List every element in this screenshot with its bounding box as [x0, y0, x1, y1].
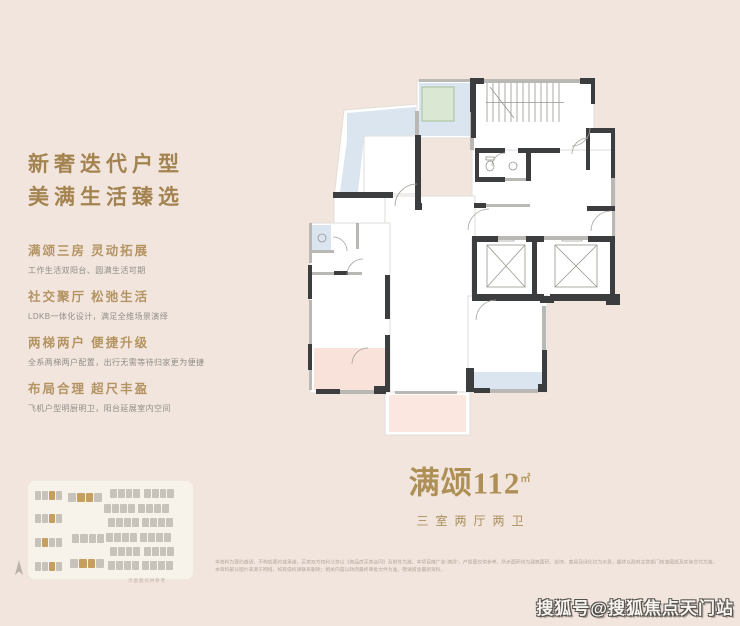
building-footprint: [106, 533, 137, 542]
left-panel: 新奢迭代户型 美满生活臻选 满颂三房 灵动拓展 工作生活双阳台、圆满生活可期 社…: [28, 148, 273, 424]
building-unit: [133, 489, 140, 498]
building-unit: [148, 533, 155, 542]
highlighted-building-unit: [88, 559, 96, 568]
building-unit: [144, 489, 151, 498]
highlighted-building-unit: [49, 491, 55, 500]
building-footprint: [35, 562, 62, 571]
floor-plan-svg: [300, 78, 645, 463]
building-unit: [42, 491, 48, 500]
disclaimer-line-1: 本资料为要约邀请，不构成要约或承诺，买卖双方权利义务以《商品房买卖合同》及附件为…: [215, 558, 722, 566]
building-unit: [72, 534, 79, 543]
building-unit: [116, 561, 123, 570]
site-plan-buildings: [28, 481, 193, 579]
selling-point-1: 满颂三房 灵动拓展 工作生活双阳台、圆满生活可期: [28, 240, 273, 276]
building-footprint: [110, 547, 140, 556]
building-unit: [120, 504, 127, 513]
building-unit: [80, 534, 87, 543]
building-unit: [124, 518, 131, 527]
building-footprint: [35, 514, 62, 523]
building-unit: [158, 561, 165, 570]
building-unit: [152, 547, 159, 556]
site-plan-caption: 示意图仅供参考: [128, 577, 166, 584]
compass-icon: [14, 560, 24, 576]
building-unit: [146, 504, 153, 513]
building-unit: [133, 547, 140, 556]
building-unit: [124, 561, 131, 570]
building-footprint: [108, 518, 139, 527]
building-unit: [144, 547, 151, 556]
selling-point-body: 工作生活双阳台、圆满生活可期: [28, 265, 273, 276]
building-unit: [130, 533, 137, 542]
building-footprint: [138, 504, 169, 513]
building-unit: [56, 538, 62, 547]
building-unit: [126, 547, 133, 556]
building-footprint: [70, 559, 104, 568]
building-unit: [112, 504, 119, 513]
bay-window-bottom-right: [471, 372, 544, 390]
building-unit: [142, 518, 149, 527]
page-root: { "colors": { "background": "#f2e5dd", "…: [0, 0, 740, 626]
title-line-1: 新奢迭代户型: [28, 148, 273, 181]
balcony-top-left: [340, 107, 416, 194]
highlighted-building-unit: [79, 559, 87, 568]
building-footprint: [144, 489, 174, 498]
building-unit: [35, 514, 41, 523]
selling-point-body: 飞机户型明厨明卫，阳台延展室内空间: [28, 403, 273, 414]
selling-point-heading: 社交聚厅 松弛生活: [28, 286, 273, 305]
balcony-bottom-pink: [389, 395, 466, 432]
building-unit: [49, 538, 55, 547]
building-unit: [56, 491, 62, 500]
building-unit: [68, 493, 76, 502]
building-footprint: [142, 561, 173, 570]
building-unit: [158, 518, 165, 527]
building-unit: [166, 518, 173, 527]
selling-point-body: 全系两梯两户配置，出行无需等待归家更为便捷: [28, 357, 273, 368]
building-unit: [114, 533, 121, 542]
building-unit: [70, 559, 78, 568]
building-footprint: [72, 534, 104, 543]
building-unit: [104, 504, 111, 513]
building-unit: [132, 518, 139, 527]
page-title: 新奢迭代户型 美满生活臻选: [28, 148, 273, 214]
building-footprint: [35, 538, 62, 547]
building-footprint: [144, 547, 174, 556]
building-unit: [35, 538, 41, 547]
building-unit: [35, 562, 41, 571]
building-unit: [150, 561, 157, 570]
selling-point-heading: 两梯两户 便捷升级: [28, 332, 273, 351]
unit-name: 满颂112㎡: [385, 460, 555, 503]
bedroom-pink-floor: [314, 348, 385, 390]
selling-point-2: 社交聚厅 松弛生活 LDKB一体化设计，满足全维场景演绎: [28, 286, 273, 322]
building-unit: [94, 493, 102, 502]
building-unit: [56, 562, 62, 571]
building-footprint: [35, 491, 62, 500]
building-unit: [150, 518, 157, 527]
building-unit: [116, 518, 123, 527]
building-unit: [56, 514, 62, 523]
bay-window-left: [311, 225, 331, 251]
building-footprint: [140, 533, 171, 542]
building-unit: [162, 504, 169, 513]
building-unit: [167, 489, 174, 498]
building-footprint: [104, 504, 135, 513]
sqm-unit: ㎡: [520, 474, 531, 485]
building-unit: [160, 489, 167, 498]
building-unit: [42, 514, 48, 523]
disclaimer-line-2: 本资料部分图片来源于网络，如有侵权请联系删除；相关内容以政府最终审批文件为准，敬…: [215, 566, 722, 574]
building-unit: [108, 561, 115, 570]
building-unit: [160, 547, 167, 556]
unit-label: 满颂112㎡ 三室两厅两卫: [385, 460, 555, 529]
building-unit: [96, 559, 104, 568]
selling-point-4: 布局合理 超尺丰盈 飞机户型明厨明卫，阳台延展室内空间: [28, 378, 273, 414]
unit-spec: 三室两厅两卫: [385, 512, 555, 529]
selling-point-heading: 满颂三房 灵动拓展: [28, 240, 273, 259]
building-unit: [110, 489, 117, 498]
building-unit: [110, 547, 117, 556]
building-unit: [156, 533, 163, 542]
disclaimer: 本资料为要约邀请，不构成要约或承诺，买卖双方权利义务以《商品房买卖合同》及附件为…: [215, 558, 725, 580]
building-unit: [97, 534, 104, 543]
highlighted-building-unit: [86, 493, 94, 502]
building-footprint: [142, 518, 173, 527]
building-unit: [42, 562, 48, 571]
building-unit: [164, 533, 171, 542]
building-footprint: [110, 489, 140, 498]
highlighted-building-unit: [42, 538, 48, 547]
building-footprint: [68, 493, 102, 502]
site-plan-panel: [27, 480, 194, 580]
building-unit: [166, 561, 173, 570]
building-unit: [118, 547, 125, 556]
building-unit: [140, 533, 147, 542]
selling-point-body: LDKB一体化设计，满足全维场景演绎: [28, 311, 273, 322]
building-unit: [154, 504, 161, 513]
watermark: 搜狐号@搜狐焦点天门站: [536, 594, 734, 619]
selling-point-3: 两梯两户 便捷升级 全系两梯两户配置，出行无需等待归家更为便捷: [28, 332, 273, 368]
highlighted-building-unit: [49, 562, 55, 571]
building-unit: [126, 489, 133, 498]
building-unit: [108, 518, 115, 527]
building-unit: [122, 533, 129, 542]
building-unit: [89, 534, 96, 543]
highlighted-building-unit: [77, 493, 85, 502]
building-unit: [152, 489, 159, 498]
building-footprint: [108, 561, 139, 570]
kitchen-area: [419, 83, 471, 136]
building-unit: [142, 561, 149, 570]
building-unit: [167, 547, 174, 556]
selling-point-heading: 布局合理 超尺丰盈: [28, 378, 273, 397]
building-unit: [132, 561, 139, 570]
building-unit: [138, 504, 145, 513]
floor-plan: [300, 78, 645, 463]
title-line-2: 美满生活臻选: [28, 181, 273, 214]
building-unit: [35, 491, 41, 500]
building-unit: [106, 533, 113, 542]
building-unit: [128, 504, 135, 513]
highlighted-building-unit: [49, 514, 55, 523]
building-unit: [118, 489, 125, 498]
